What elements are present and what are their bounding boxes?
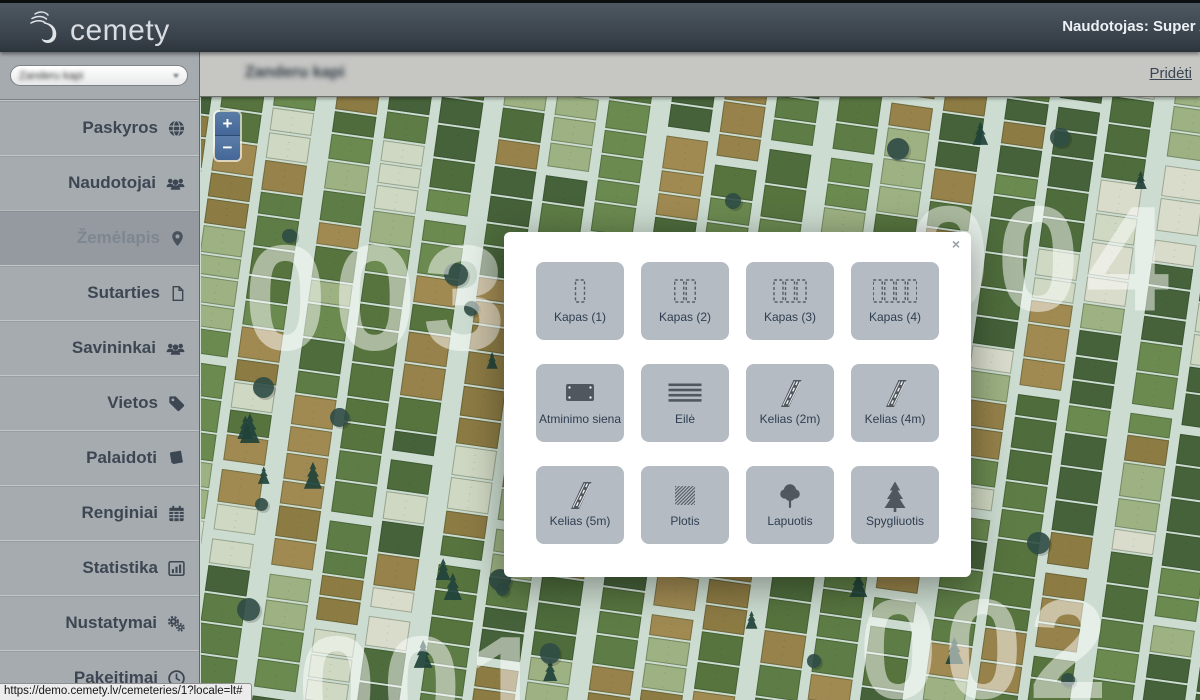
cemetery-plot <box>201 110 209 137</box>
cemetery-plot <box>1073 357 1118 384</box>
app-header: cemety Naudotojas: Super A <box>0 0 1200 52</box>
sidebar-item-label: Palaidoti <box>86 448 157 468</box>
cemetery-plot <box>332 111 377 138</box>
cemetery-plot <box>811 638 857 677</box>
cemetery-plot <box>531 631 576 661</box>
cemetery-plot <box>1080 303 1125 333</box>
cemetery-plot <box>1006 449 1052 485</box>
cemetery-plot <box>205 565 250 597</box>
cemetery-plot <box>1028 300 1073 328</box>
cemetery-plot <box>986 605 1031 632</box>
cemetery-plot <box>1076 329 1121 360</box>
cemetery-plot <box>1156 198 1200 237</box>
cemetery-plot <box>1019 359 1064 391</box>
cemetery-plot <box>324 160 370 194</box>
cemetery-plot <box>380 140 425 167</box>
cemetery-plot <box>258 191 303 219</box>
cemetery-plot <box>1093 648 1139 683</box>
sidebar-item-vietos[interactable]: Vietos <box>0 375 199 430</box>
dialog-button-label: Eilė <box>675 412 695 426</box>
sidebar-item-palaidoti[interactable]: Palaidoti <box>0 430 199 485</box>
cemetery-plot <box>208 173 253 203</box>
dialog-button-label: Kelias (2m) <box>760 412 821 426</box>
cemetery-plot <box>373 553 419 590</box>
cemetery-plot <box>201 458 213 489</box>
cemetery-plot <box>201 395 221 433</box>
sidebar-item-sutarties[interactable]: Sutarties <box>0 265 199 320</box>
cemetery-plot <box>447 477 493 514</box>
cemetery-plot <box>360 647 406 686</box>
road-icon <box>558 478 602 512</box>
sidebar-item-naudotojai[interactable]: Naudotojai <box>0 155 199 210</box>
sidebar-item-statistika[interactable]: Statistika <box>0 540 199 595</box>
cemetery-plot <box>1039 597 1084 626</box>
cemetery-plot <box>765 598 811 634</box>
cemetery-plot <box>434 125 480 162</box>
cemetery-plot <box>308 654 353 682</box>
cemetery-plot <box>421 664 466 697</box>
cemetery-plot <box>1004 98 1049 125</box>
cemetery-plot <box>542 175 587 206</box>
cemetery-plot <box>486 578 531 611</box>
sidebar-item-paskyros[interactable]: Paskyros <box>0 100 199 155</box>
cemetery-plot <box>201 134 206 168</box>
zoom-out-button[interactable]: − <box>215 136 240 160</box>
dialog-button-lapuotis[interactable]: Lapuotis <box>746 466 834 544</box>
sidebar-nav: PaskyrosNaudotojaiŽemėlapisSutartiesSavi… <box>0 100 199 700</box>
cemetery-plot <box>973 316 1018 349</box>
dialog-button-kelias-4m[interactable]: Kelias (4m) <box>851 364 939 442</box>
cemetery-plot <box>1132 372 1178 410</box>
cemetery-plot <box>593 635 639 669</box>
cemetery-plot <box>1141 679 1187 700</box>
cemetery-plot <box>1011 417 1057 453</box>
cemetery-plot <box>1096 180 1142 217</box>
cemetery-plot <box>1087 242 1133 280</box>
cemetery-plot <box>201 623 242 658</box>
cemetery-plot <box>1186 366 1200 397</box>
cemetery-plot <box>201 429 217 462</box>
cemetery-plot <box>295 370 340 398</box>
cemetery-plot <box>926 642 972 679</box>
cemetery-plot <box>201 593 246 626</box>
cemetery-plot <box>201 276 238 308</box>
cemetery-plot <box>201 97 214 114</box>
cemetery-plot <box>598 155 643 184</box>
cemetery-plot <box>528 657 573 685</box>
cemetery-plot <box>384 112 429 144</box>
cemetery-plot <box>201 225 245 258</box>
cemetery-plot <box>344 397 389 426</box>
cemetery-plot <box>316 222 361 249</box>
cemetery-plot <box>1107 551 1153 587</box>
cemetery-plot <box>872 597 916 623</box>
cemetery-plot <box>1137 341 1183 375</box>
dialog-button-kapas-2[interactable]: Kapas (2) <box>641 262 729 340</box>
cemetery-plot <box>254 659 300 693</box>
cemetery-plot <box>1047 157 1093 192</box>
cemetery-plot <box>1065 405 1110 437</box>
cemetery-plot <box>1023 324 1069 363</box>
tag-icon <box>167 394 186 413</box>
cemetery-plot <box>1052 130 1097 160</box>
gears-icon <box>166 614 186 633</box>
cemetery-plot <box>311 629 356 658</box>
cemetery-plot <box>1152 240 1197 267</box>
cemetery-select-value: Zanderu kapi <box>19 70 173 82</box>
cemetery-plot <box>1055 107 1100 134</box>
cemetery-plot <box>993 538 1039 577</box>
cemetery-plot <box>316 597 361 626</box>
sidebar-item-label: Renginiai <box>81 503 158 523</box>
cemetery-plot <box>1052 501 1098 537</box>
cemetery-plot <box>275 506 321 542</box>
zoom-in-button[interactable]: + <box>215 112 240 136</box>
sidebar-item-label: Vietos <box>107 393 158 413</box>
dialog-button-plotis[interactable]: Plotis <box>641 466 729 544</box>
cemetery-plot <box>1098 619 1143 652</box>
cemetery-plot <box>662 135 708 174</box>
cemetery-plot <box>551 117 596 147</box>
cemetery-plot <box>340 422 385 454</box>
cemetery-plot <box>242 301 287 331</box>
cemetery-plot <box>1047 532 1093 570</box>
cemetery-plot <box>483 607 527 633</box>
cemetery-plot <box>417 243 463 280</box>
cemetery-plot <box>319 575 363 601</box>
add-link[interactable]: Pridėti <box>1149 65 1192 82</box>
cemetery-plot <box>1176 434 1200 469</box>
cemetery-plot <box>1109 97 1154 127</box>
cemetery-plot <box>1171 466 1200 503</box>
cemetery-plot <box>201 485 209 519</box>
road-icon <box>768 376 812 410</box>
cemetery-plot <box>308 280 353 307</box>
cemetery-plot <box>460 386 506 422</box>
cemetery-plot <box>1002 481 1047 512</box>
cemetery-plot <box>939 112 984 145</box>
cemetery-plot <box>370 587 414 613</box>
dove-logo-icon <box>26 7 68 52</box>
cemetery-plot <box>201 360 226 398</box>
add-object-dialog: × Kapas (1)Kapas (2)Kapas (3)Kapas (4)At… <box>504 232 971 577</box>
cemetery-plot <box>369 211 415 248</box>
cemetery-plot <box>1101 153 1146 183</box>
dialog-button-label: Kapas (4) <box>869 310 921 324</box>
cemetery-plot <box>1167 131 1200 162</box>
cemetery-plot <box>365 616 411 652</box>
cemetery-plot <box>1042 573 1087 602</box>
cemetery-plot <box>432 590 477 621</box>
cemetery-plot <box>429 158 475 192</box>
sidebar-item-label: Sutarties <box>87 283 160 303</box>
cemetery-plot <box>930 168 976 204</box>
app-logo[interactable]: cemety <box>26 7 170 52</box>
cemetery-plot <box>1035 623 1080 653</box>
cemetery-plot <box>1060 97 1105 104</box>
cemetery-plot <box>326 520 372 555</box>
cemetery-plot <box>1032 277 1077 304</box>
cemetery-plot <box>266 132 311 164</box>
cemetery-plot <box>270 107 315 136</box>
cemetery-plot <box>263 600 308 631</box>
toolbar: Zanderu kapi Pridėti <box>200 52 1200 97</box>
dialog-button-eile[interactable]: Eilė <box>641 364 729 442</box>
sidebar-item-label: Žemėlapis <box>77 228 160 248</box>
cemetery-select-area: Zanderu kapi <box>0 52 199 100</box>
row-lines-icon <box>663 376 707 410</box>
cemetery-plot <box>998 508 1044 542</box>
cemetery-plot <box>1128 412 1172 438</box>
cemetery-plot <box>478 629 523 662</box>
cemetery-plot <box>653 574 699 612</box>
cemetery-plot <box>246 276 291 305</box>
cemetery-plot <box>235 359 279 385</box>
app-root: cemety Naudotojas: Super A Zanderu kapi … <box>0 0 1200 700</box>
cemetery-plot <box>1150 625 1195 657</box>
sidebar-item-label: Statistika <box>82 558 158 578</box>
cemetery-plot <box>213 504 258 536</box>
dialog-button-label: Lapuotis <box>767 514 812 528</box>
cemetery-plot <box>451 445 497 481</box>
cemetery-plot <box>1194 304 1200 338</box>
cemetery-plot <box>934 589 979 622</box>
cemetery-plot <box>487 196 532 228</box>
cemetery-plot <box>539 575 584 606</box>
cemetery-plot <box>1089 679 1135 700</box>
cemetery-plot <box>305 678 350 700</box>
dialog-button-label: Spygliuotis <box>866 514 924 528</box>
cemetery-plot <box>1190 334 1200 370</box>
cemetery-plot <box>862 653 908 691</box>
cemetery-plot <box>1155 595 1200 622</box>
cemetery-plot <box>965 370 1010 402</box>
cemetery-plot <box>323 551 368 578</box>
cemetery-plot <box>1162 532 1200 571</box>
sidebar: Zanderu kapi PaskyrosNaudotojaiŽemėlapis… <box>0 52 200 700</box>
road-icon <box>873 376 917 410</box>
cemetery-plot <box>981 628 1027 665</box>
users-icon <box>165 339 186 358</box>
cemetery-plot <box>383 491 429 525</box>
cemetery-plot <box>836 97 882 127</box>
cemetery-plot <box>291 395 337 430</box>
cemetery-plot <box>409 304 454 336</box>
sidebar-item-renginiai[interactable]: Renginiai <box>0 485 199 540</box>
conifer-tree-icon <box>873 478 917 512</box>
cemetery-plot <box>238 327 284 364</box>
dialog-button-kelias-2m[interactable]: Kelias (2m) <box>746 364 834 442</box>
book-icon <box>166 449 186 468</box>
memorial-wall-icon <box>558 376 602 410</box>
cemetery-plot <box>271 537 316 570</box>
cemetery-plot <box>1111 529 1155 555</box>
cemetery-plot <box>969 345 1014 374</box>
cemetery-plot <box>1158 568 1200 599</box>
cemetery-plot <box>204 198 249 228</box>
cemetery-plot <box>595 180 639 207</box>
cemetery-plot <box>600 587 645 614</box>
sidebar-item-label: Naudotojai <box>68 173 156 193</box>
cemetery-plot <box>760 184 806 222</box>
users-icon <box>165 174 186 193</box>
cemetery-plot <box>413 275 458 307</box>
cemetery-plot <box>923 676 968 700</box>
cemetery-plot <box>1170 106 1200 136</box>
cemetery-plot <box>201 327 231 357</box>
cemetery-plot <box>649 614 693 640</box>
sidebar-item-zemelapis[interactable]: Žemėlapis <box>0 210 199 265</box>
cemetery-plot <box>832 123 877 155</box>
cemetery-plot <box>443 511 488 539</box>
cemetery-plot <box>253 215 299 251</box>
cemetery-plot <box>711 164 757 201</box>
cemetery-plot <box>209 539 254 569</box>
cemetery-plot <box>981 253 1027 292</box>
dialog-button-label: Kelias (5m) <box>550 514 611 528</box>
cemetery-plot <box>352 328 398 367</box>
dialog-button-label: Kelias (4m) <box>865 412 926 426</box>
cemetery-plot <box>1092 213 1137 246</box>
cemetery-plot <box>426 189 471 217</box>
map-zoom-control: + − <box>213 110 242 162</box>
grave-3-icon <box>768 274 812 308</box>
cemetery-plot <box>400 363 446 401</box>
cemetery-plot <box>1027 678 1072 700</box>
cemetery-plot <box>1039 218 1085 253</box>
cemetery-plot <box>1035 249 1080 281</box>
cemetery-plot <box>668 104 713 132</box>
cemetery-plot <box>1001 121 1046 149</box>
sidebar-item-nustatymai[interactable]: Nustatymai <box>0 595 199 650</box>
cemetery-plot <box>1084 276 1129 307</box>
grave-2-icon <box>663 274 707 308</box>
cemetery-plot <box>893 97 939 100</box>
cemetery-plot <box>989 573 1035 609</box>
cemetery-plot <box>377 163 421 189</box>
cemetery-plot <box>280 481 325 509</box>
close-icon[interactable]: × <box>952 236 960 252</box>
cemetery-plot <box>771 119 816 146</box>
cemetery-plot <box>266 574 311 604</box>
map-canvas[interactable]: 003004001002 + − × Kapas (1)Kapas (2)Kap… <box>201 97 1200 700</box>
cemetery-plot <box>303 303 349 342</box>
cemetery-plot <box>201 303 234 331</box>
cemetery-plot <box>694 662 739 695</box>
cemetery-plot <box>422 220 466 247</box>
cemetery-plot <box>1124 435 1169 467</box>
cemetery-plot <box>428 617 473 646</box>
cemetery-plot <box>1043 188 1089 222</box>
cemetery-plot <box>440 535 484 561</box>
dialog-button-kapas-4[interactable]: Kapas (4) <box>851 262 939 340</box>
cemetery-plot <box>261 160 307 195</box>
cemetery-plot <box>659 170 704 197</box>
grave-1-icon <box>558 274 602 308</box>
cemetery-plot <box>706 579 751 608</box>
cemetery-plot <box>1061 433 1107 470</box>
cemetery-plot <box>1119 463 1165 502</box>
cemetery-plot <box>645 637 690 667</box>
cemetery-plot <box>716 134 761 161</box>
cemetery-plot <box>888 103 933 131</box>
cemetery-plot <box>880 158 925 190</box>
dialog-button-label: Plotis <box>670 514 699 528</box>
calendar-icon <box>167 504 186 523</box>
cemetery-plot <box>825 183 870 210</box>
cemetery-plot <box>816 614 861 642</box>
cemetery-plot <box>756 664 802 700</box>
dialog-button-atminimo-siena[interactable]: Atminimo siena <box>536 364 624 442</box>
cemetery-plot <box>231 382 276 413</box>
cemetery-plot <box>395 397 441 434</box>
cemetery-plot <box>495 139 540 170</box>
dialog-button-spygliuotis[interactable]: Spygliuotis <box>851 466 939 544</box>
cemetery-plot <box>1161 165 1200 201</box>
cemetery-plot <box>1192 694 1200 700</box>
dialog-button-kelias-5m[interactable]: Kelias (5m) <box>536 466 624 544</box>
cemetery-plot <box>765 149 811 188</box>
deciduous-tree-icon <box>768 478 812 512</box>
cemetery-plot <box>935 142 980 173</box>
cemetery-plot <box>1105 124 1151 158</box>
cemetery-plot <box>828 158 873 187</box>
cemetery-plot <box>986 218 1032 257</box>
cemetery-plot <box>977 661 1022 694</box>
cemetery-plot <box>994 173 1038 199</box>
cemetery-plot <box>365 244 410 276</box>
cemetery-plot <box>1056 467 1102 505</box>
cemetery-plot <box>1102 584 1148 623</box>
cemetery-plot <box>547 143 592 173</box>
dialog-button-label: Kapas (1) <box>554 310 606 324</box>
cemetery-plot <box>1145 286 1191 320</box>
cemetery-plot <box>1167 498 1200 536</box>
cemetery-plot <box>589 665 634 696</box>
cemetery-plot <box>1115 498 1161 533</box>
map-marker-icon <box>169 229 186 248</box>
cemetery-plot <box>774 97 819 123</box>
cemetery-plot <box>217 468 263 507</box>
file-icon <box>169 284 186 303</box>
chart-icon <box>167 559 186 578</box>
cemetery-plot <box>223 435 268 466</box>
cemetery-plot <box>331 481 377 517</box>
hatch-area-icon <box>663 478 707 512</box>
cemetery-plot <box>249 247 294 279</box>
cemetery-plot <box>642 662 687 693</box>
cemetery-plot <box>931 618 976 646</box>
dialog-button-label: Atminimo siena <box>539 412 621 426</box>
cemetery-plot <box>227 409 272 438</box>
cemetery-plot <box>361 273 407 308</box>
cemetery-plot <box>320 191 366 226</box>
current-user-label: Naudotojas: Super A <box>1062 18 1200 35</box>
dialog-button-kapas-1[interactable]: Kapas (1) <box>536 262 624 340</box>
cemetery-plot <box>374 185 419 214</box>
cemetery-plot <box>249 696 294 700</box>
dialog-button-kapas-3[interactable]: Kapas (3) <box>746 262 834 340</box>
page-title: Zanderu kapi <box>245 64 345 82</box>
sidebar-item-savininkai[interactable]: Savininkai <box>0 320 199 375</box>
cemetery-plot <box>927 201 972 232</box>
cemetery-select[interactable]: Zanderu kapi <box>10 65 188 86</box>
cemetery-plot <box>760 630 806 668</box>
grave-4-icon <box>873 274 917 308</box>
dialog-button-label: Kapas (2) <box>659 310 711 324</box>
cemetery-plot <box>605 100 650 134</box>
globe-icon <box>167 119 186 138</box>
